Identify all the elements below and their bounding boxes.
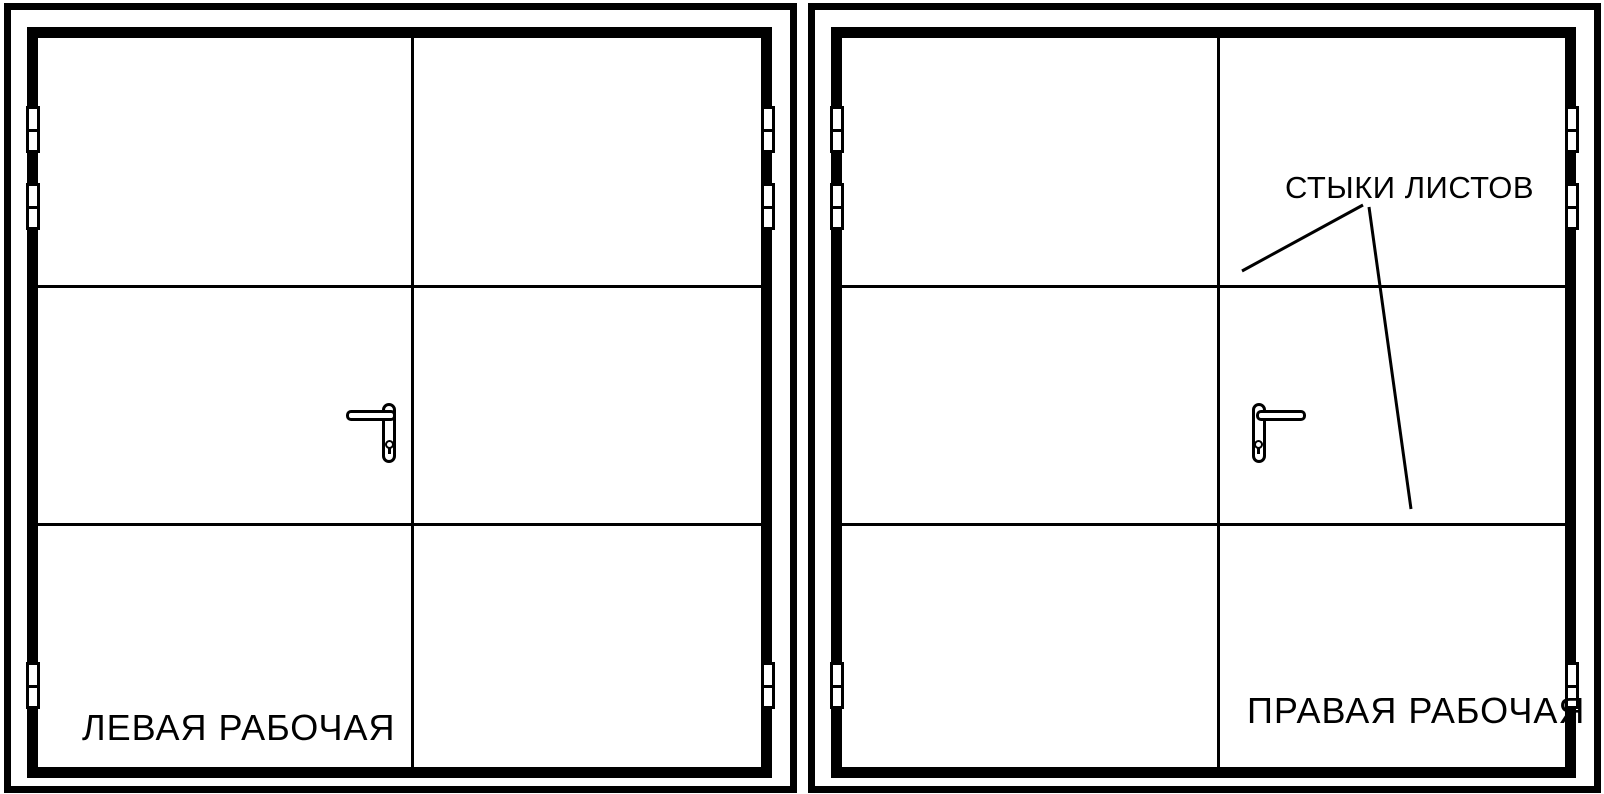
sheet-joint-line-bottom (38, 523, 761, 526)
leader-line-to-vertical-joint (1369, 207, 1411, 509)
hinge-icon (761, 183, 775, 230)
hinge-icon (26, 106, 40, 153)
door-label-left-working: ЛЕВАЯ РАБОЧАЯ (82, 710, 396, 746)
keyhole-stem (388, 447, 391, 454)
hinge-icon (26, 183, 40, 230)
annotation-sheet-joints: СТЫКИ ЛИСТОВ (1285, 172, 1534, 203)
leaf-meeting-stile (411, 38, 414, 768)
sheet-joint-line-top (38, 285, 761, 288)
drawing-canvas: ЛЕВАЯ РАБОЧАЯ СТЫКИ ЛИСТОВ ПРАВАЯ РАБОЧА… (0, 0, 1604, 794)
door-right-working: СТЫКИ ЛИСТОВ ПРАВАЯ РАБОЧАЯ (808, 3, 1601, 793)
door-left-working: ЛЕВАЯ РАБОЧАЯ (4, 3, 797, 793)
door-leaf-frame (27, 27, 772, 778)
hinge-icon (761, 106, 775, 153)
hinge-icon (761, 662, 775, 709)
door-label-right-working: ПРАВАЯ РАБОЧАЯ (1247, 693, 1585, 729)
hinge-icon (26, 662, 40, 709)
annotation-leader-lines (808, 3, 1601, 793)
handle-lever (346, 410, 396, 421)
leader-line-to-horizontal-joint (1242, 205, 1363, 271)
